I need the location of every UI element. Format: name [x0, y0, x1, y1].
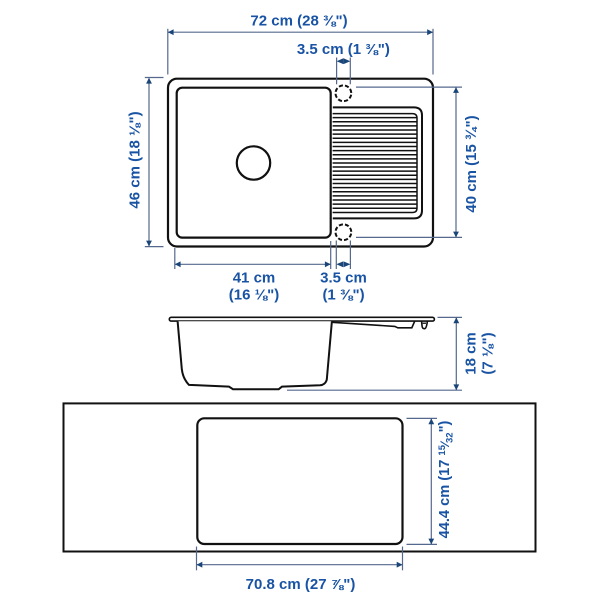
- svg-text:18 cm: 18 cm: [463, 332, 480, 375]
- svg-text:40 cm (15 ¾"): 40 cm (15 ¾"): [463, 115, 480, 212]
- svg-text:46 cm (18 ⅛"): 46 cm (18 ⅛"): [126, 111, 143, 208]
- svg-text:41 cm: 41 cm: [233, 270, 276, 287]
- svg-text:70.8 cm (27 ⅞"): 70.8 cm (27 ⅞"): [246, 576, 356, 593]
- svg-text:(16 ⅛"): (16 ⅛"): [229, 286, 279, 303]
- svg-text:(7 ⅛"): (7 ⅛"): [479, 332, 496, 374]
- svg-text:3.5 cm: 3.5 cm: [320, 270, 367, 287]
- svg-text:(1 ⅜"): (1 ⅜"): [322, 286, 364, 303]
- svg-text:3.5 cm (1 ⅜"): 3.5 cm (1 ⅜"): [297, 41, 390, 58]
- svg-text:72 cm (28 ⅜"): 72 cm (28 ⅜"): [250, 13, 347, 30]
